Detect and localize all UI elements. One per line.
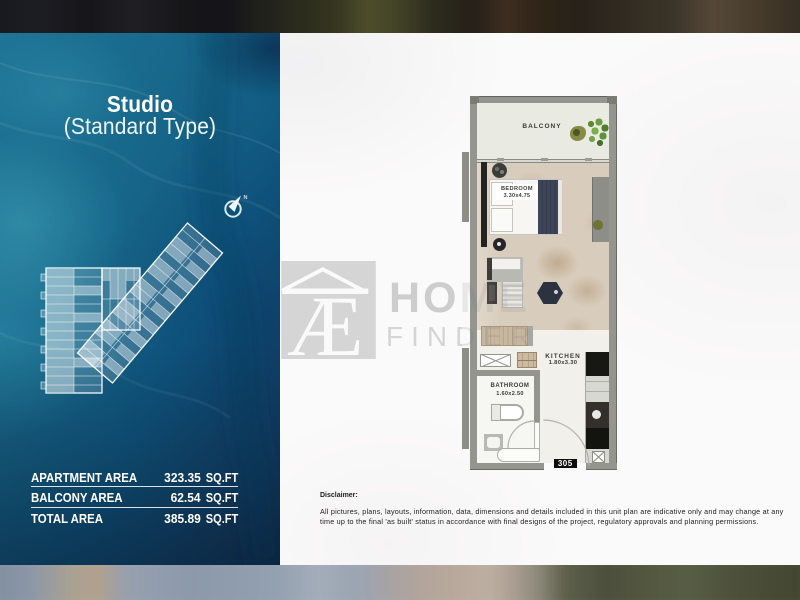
svg-text:Æ: Æ — [287, 278, 363, 359]
